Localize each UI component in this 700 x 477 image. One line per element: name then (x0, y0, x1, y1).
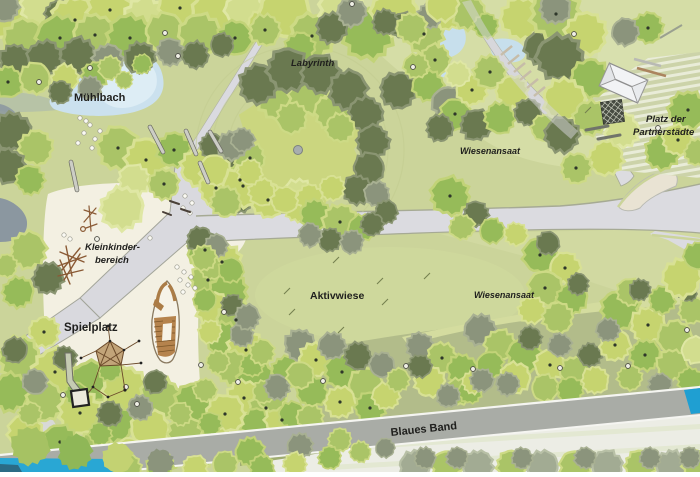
svg-text:Mühlbach: Mühlbach (74, 92, 126, 104)
svg-text:Aktivwiese: Aktivwiese (310, 290, 364, 302)
svg-text:Kleinkinder-: Kleinkinder- (85, 242, 140, 253)
svg-text:Spielplatz: Spielplatz (64, 322, 118, 334)
svg-text:bereich: bereich (95, 255, 129, 266)
svg-text:Wiesenansaat: Wiesenansaat (460, 146, 521, 156)
svg-text:Partnerstädte: Partnerstädte (633, 127, 695, 138)
svg-text:Platz der: Platz der (646, 114, 687, 125)
svg-text:Labyrinth: Labyrinth (291, 58, 334, 69)
svg-text:Wiesenansaat: Wiesenansaat (474, 290, 535, 300)
